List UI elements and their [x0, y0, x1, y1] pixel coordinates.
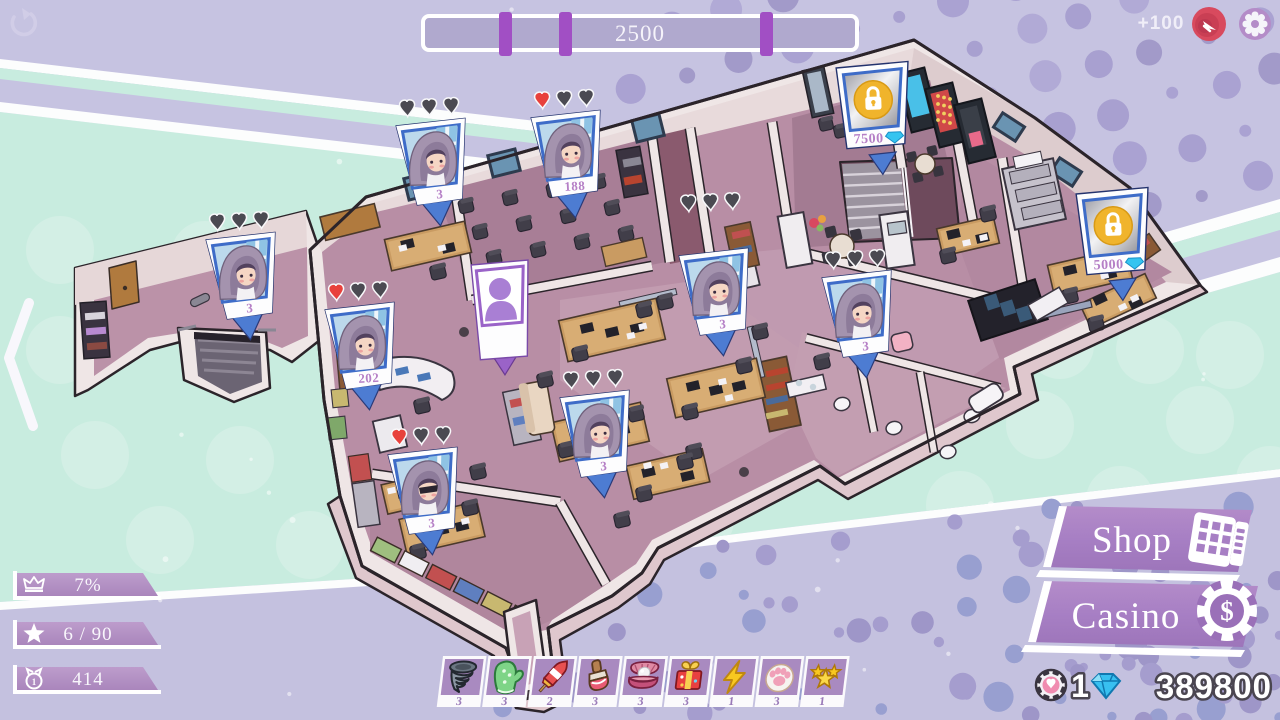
svg-text:3: 3	[862, 338, 870, 353]
svg-text:+100: +100	[1138, 13, 1185, 34]
svg-text:3: 3	[436, 186, 444, 201]
svg-text:2500: 2500	[615, 21, 665, 46]
svg-text:1: 1	[32, 677, 37, 687]
svg-text:7500: 7500	[853, 131, 884, 147]
svg-text:202: 202	[358, 370, 380, 386]
svg-text:389800: 389800	[1156, 668, 1272, 705]
svg-text:Casino: Casino	[1072, 596, 1181, 637]
svg-text:6 / 90: 6 / 90	[63, 624, 112, 645]
svg-text:3: 3	[428, 515, 436, 530]
svg-text:3: 3	[246, 300, 254, 315]
svg-text:1: 1	[1071, 668, 1089, 704]
svg-text:414: 414	[72, 669, 104, 690]
svg-text:$: $	[1220, 596, 1234, 626]
svg-text:7%: 7%	[74, 575, 101, 596]
svg-text:Shop: Shop	[1092, 520, 1172, 561]
svg-text:188: 188	[564, 178, 586, 194]
svg-text:3: 3	[600, 458, 608, 473]
svg-text:5000: 5000	[1093, 257, 1124, 273]
svg-text:3: 3	[719, 316, 727, 331]
